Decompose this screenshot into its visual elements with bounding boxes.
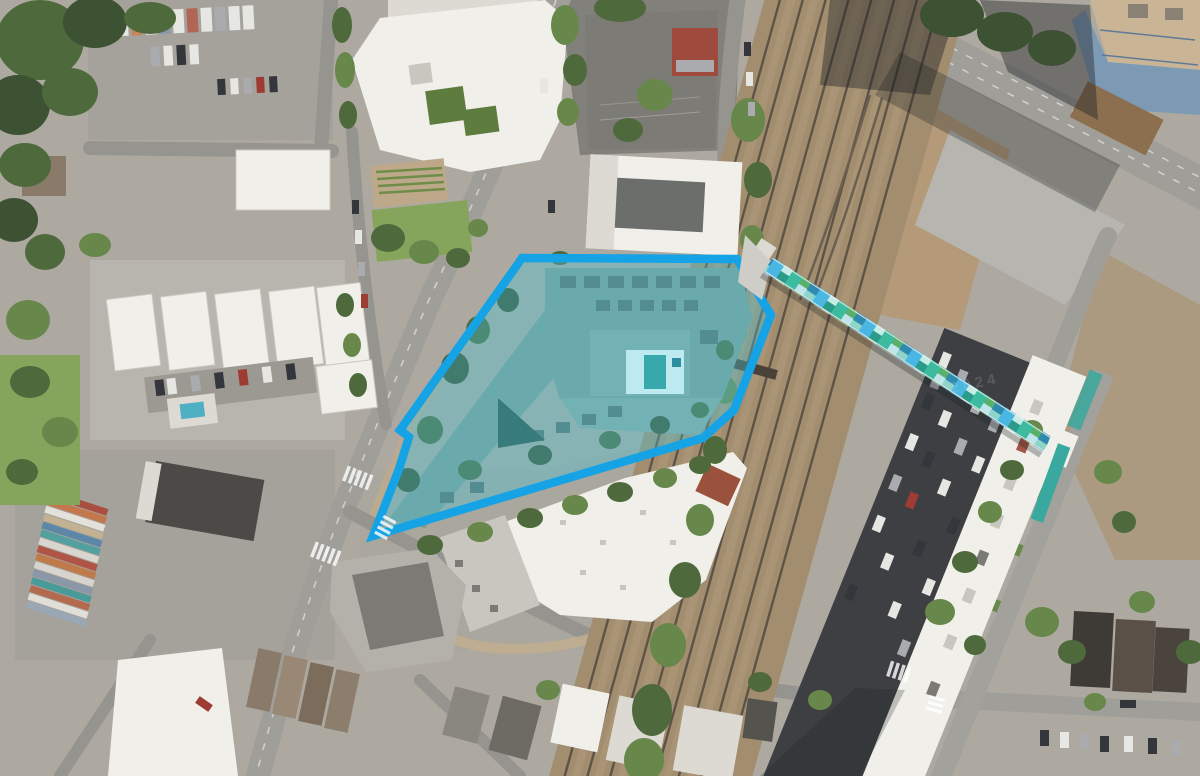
aerial-map-canvas: 2024 [0, 0, 1200, 776]
aerial-map: 2024 [0, 0, 1200, 776]
office-building-north-of-site [586, 154, 743, 256]
condo-pool [180, 401, 206, 419]
warehouse-bottom-left [108, 648, 238, 776]
